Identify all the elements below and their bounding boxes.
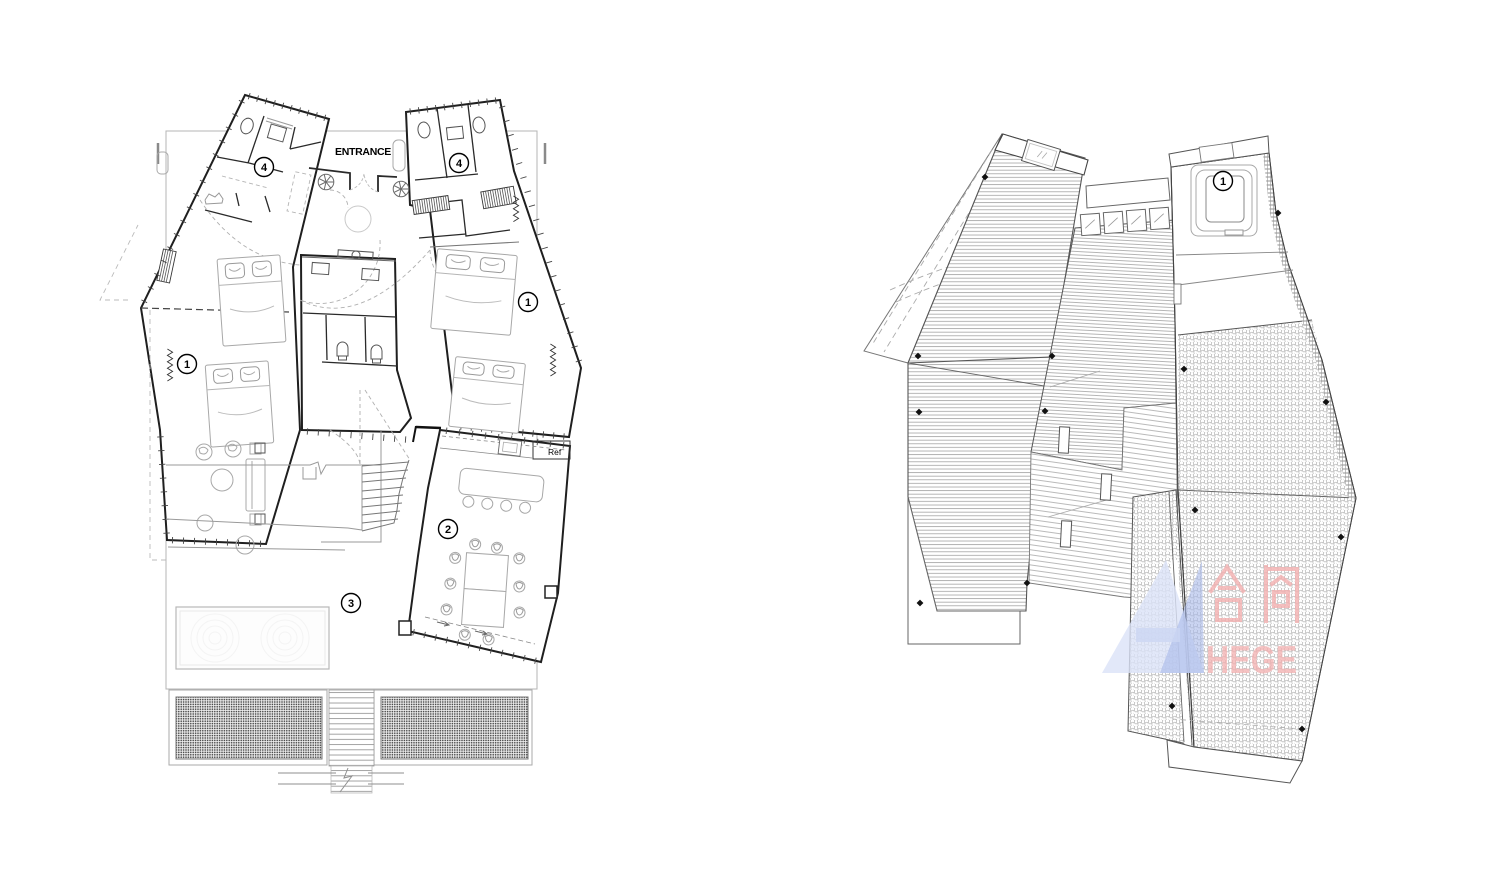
svg-text:ENTRANCE: ENTRANCE (335, 146, 391, 158)
svg-text:4: 4 (261, 162, 268, 174)
svg-text:3: 3 (348, 598, 354, 610)
svg-text:1: 1 (1220, 176, 1226, 188)
svg-text:1: 1 (525, 297, 531, 309)
svg-text:HEGE: HEGE (1206, 639, 1297, 682)
svg-text:4: 4 (456, 158, 463, 170)
svg-text:2: 2 (445, 524, 451, 536)
svg-text:1: 1 (184, 359, 190, 371)
